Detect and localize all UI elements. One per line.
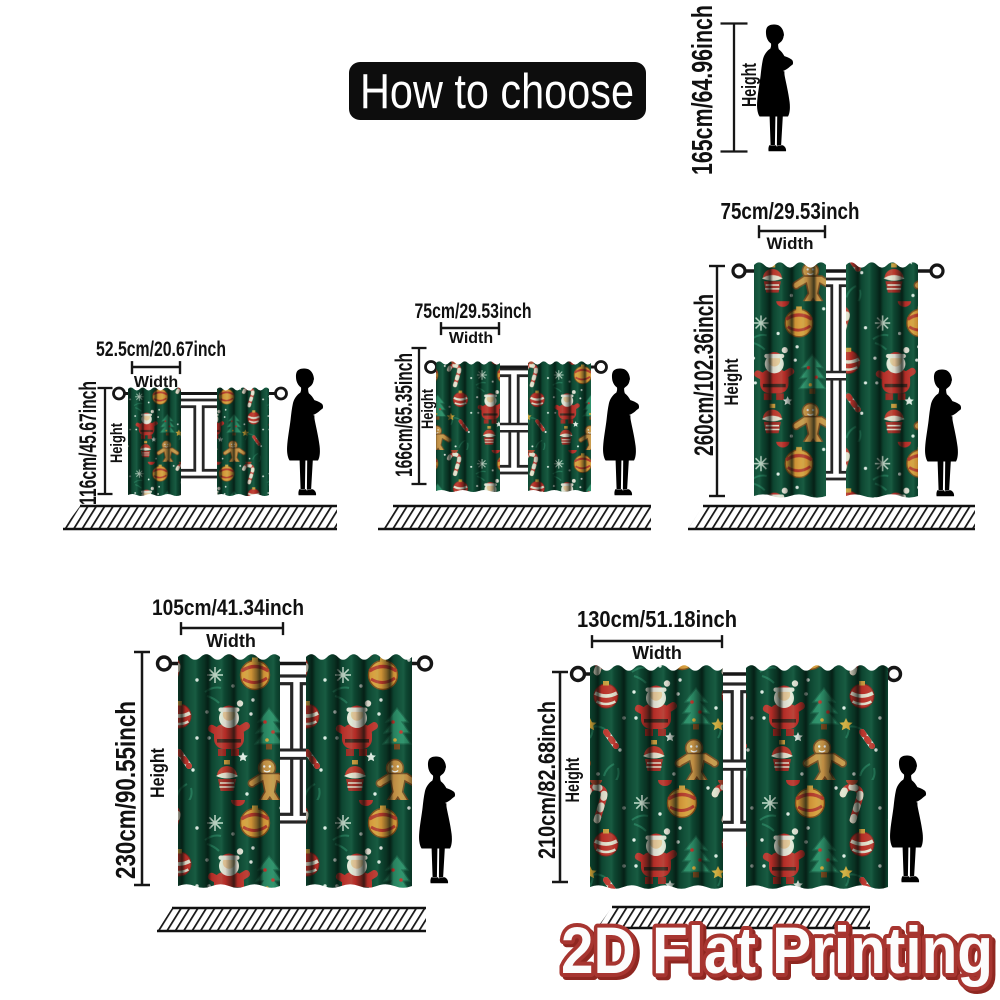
svg-text:75cm/29.53inch: 75cm/29.53inch	[415, 300, 532, 323]
svg-text:130cm/51.18inch: 130cm/51.18inch	[577, 606, 737, 632]
svg-text:75cm/29.53inch: 75cm/29.53inch	[721, 198, 860, 224]
svg-text:How to choose: How to choose	[360, 65, 634, 119]
svg-text:230cm/90.55inch: 230cm/90.55inch	[110, 701, 141, 879]
svg-text:165cm/64.96inch: 165cm/64.96inch	[687, 5, 719, 175]
svg-text:260cm/102.36inch: 260cm/102.36inch	[689, 294, 719, 456]
svg-text:Width: Width	[449, 330, 493, 347]
svg-text:Height: Height	[147, 748, 169, 798]
svg-text:116cm/45.67inch: 116cm/45.67inch	[75, 381, 102, 505]
svg-text:Width: Width	[766, 234, 813, 253]
svg-text:Height: Height	[722, 358, 743, 406]
svg-text:Width: Width	[206, 631, 256, 651]
svg-text:Height: Height	[563, 757, 584, 803]
svg-text:52.5cm/20.67inch: 52.5cm/20.67inch	[96, 338, 226, 361]
svg-text:166cm/65.35inch: 166cm/65.35inch	[391, 353, 418, 477]
svg-text:Height: Height	[418, 389, 437, 429]
svg-text:Height: Height	[107, 423, 126, 463]
svg-text:Width: Width	[632, 643, 682, 663]
svg-text:2D Flat Printing: 2D Flat Printing	[561, 913, 993, 987]
svg-text:105cm/41.34inch: 105cm/41.34inch	[152, 595, 304, 620]
svg-text:210cm/82.68inch: 210cm/82.68inch	[534, 701, 561, 859]
